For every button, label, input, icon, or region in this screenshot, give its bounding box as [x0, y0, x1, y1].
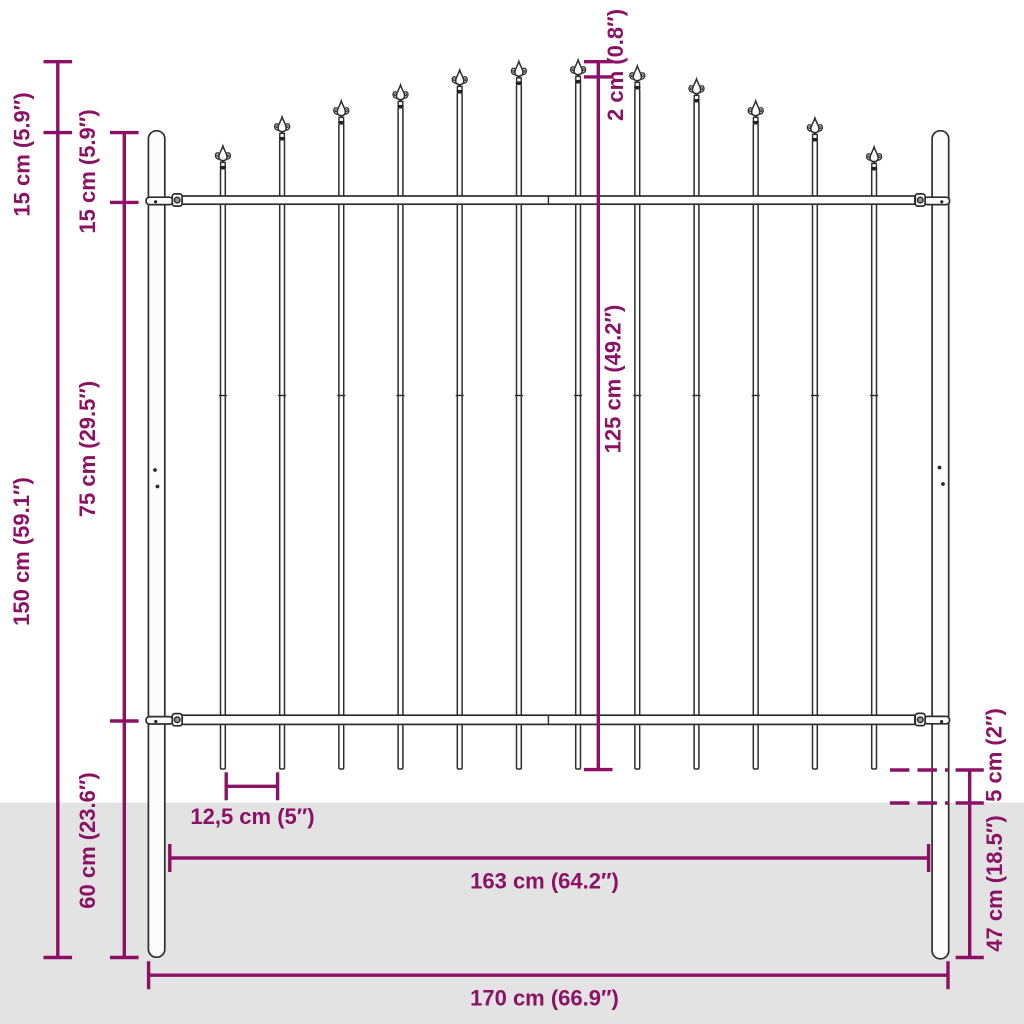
svg-text:12,5 cm (5″): 12,5 cm (5″)	[190, 804, 314, 829]
svg-text:47 cm (18.5″): 47 cm (18.5″)	[982, 815, 1007, 952]
svg-text:75 cm (29.5″): 75 cm (29.5″)	[75, 381, 100, 518]
svg-text:15 cm (5.9″): 15 cm (5.9″)	[9, 92, 34, 216]
svg-text:15 cm (5.9″): 15 cm (5.9″)	[75, 109, 100, 233]
svg-text:170 cm (66.9″): 170 cm (66.9″)	[470, 986, 619, 1011]
svg-text:125 cm (49.2″): 125 cm (49.2″)	[600, 305, 625, 454]
svg-text:150 cm (59.1″): 150 cm (59.1″)	[9, 477, 34, 626]
svg-text:2 cm (0.8″): 2 cm (0.8″)	[603, 9, 628, 121]
svg-text:5 cm (2″): 5 cm (2″)	[982, 708, 1007, 802]
svg-text:60 cm (23.6″): 60 cm (23.6″)	[75, 772, 100, 909]
svg-text:163 cm (64.2″): 163 cm (64.2″)	[470, 869, 619, 894]
